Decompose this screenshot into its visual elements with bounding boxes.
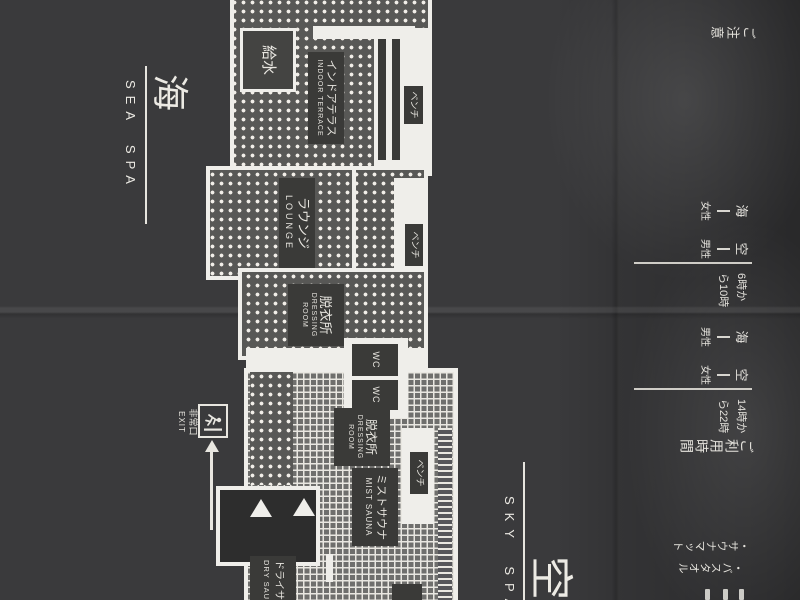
bath-assignment: 海 男性 bbox=[699, 322, 752, 352]
schedule-time: 6時か ら10時 bbox=[714, 273, 749, 307]
exit-label: 非常口 EXIT bbox=[176, 400, 198, 444]
exit-label-en: EXIT bbox=[176, 400, 186, 444]
indoor-terrace-label: インドアテラス INDOOR TERRACE bbox=[308, 52, 344, 144]
sky-spa-title: 空 SKY SPA bbox=[502, 462, 572, 600]
floor-dotted-patch bbox=[250, 372, 293, 485]
clipped-text-fragments bbox=[739, 589, 744, 600]
wall-segment bbox=[313, 26, 415, 39]
bath-assignment: 海 女性 bbox=[699, 196, 752, 226]
indoor-terrace-jp: インドアテラス bbox=[324, 60, 338, 137]
indoor-terrace-en: INDOOR TERRACE bbox=[315, 59, 324, 136]
schedule-evening: 海 男性 空 女性 14時か ら22時 bbox=[622, 322, 754, 440]
wc-box: WC bbox=[352, 344, 398, 376]
amenity-item: ・バスタオル bbox=[652, 560, 744, 575]
wc-box: WC bbox=[352, 380, 398, 410]
clipped-text-fragments bbox=[723, 589, 728, 600]
mist-sauna-label: ミストサウナ MIST SAUNA bbox=[352, 468, 398, 546]
dressing-room-upper-label: 脱衣所 DRESSING ROOM bbox=[288, 284, 344, 346]
connector-line bbox=[717, 210, 730, 212]
connector-line bbox=[717, 374, 730, 376]
dressing-room-lower-label: 脱衣所 DRESSING ROOM bbox=[334, 408, 390, 466]
bench-seat-line bbox=[378, 36, 386, 160]
spa-map-sheet: 給水 インドアテラス INDOOR TERRACE ベンチ ベンチ ベンチ ラウ… bbox=[0, 0, 800, 600]
bench-seat-line bbox=[392, 36, 400, 160]
lounge-label: ラウンジ LOUNGE bbox=[279, 178, 315, 268]
direction-triangle-icon bbox=[250, 499, 272, 517]
connector-line bbox=[717, 336, 730, 338]
clipped-text-fragments bbox=[705, 589, 710, 600]
bath-assignment: 空 男性 bbox=[699, 234, 752, 264]
schedule-time: 14時か ら22時 bbox=[714, 399, 749, 433]
running-man-icon bbox=[203, 409, 223, 433]
brochure-photo: 給水 インドアテラス INDOOR TERRACE ベンチ ベンチ ベンチ ラウ… bbox=[0, 0, 800, 600]
water-station-box: 給水 bbox=[240, 28, 296, 92]
sky-kanji: 空 bbox=[528, 556, 572, 600]
exit-arrow-head bbox=[205, 440, 219, 452]
water-station-label: 給水 bbox=[259, 45, 278, 75]
schedule-morning: 海 女性 空 男性 6時か ら10時 bbox=[622, 196, 754, 314]
notice-heading: ご注意 bbox=[692, 22, 756, 41]
amenity-item: ・サウナマット bbox=[640, 538, 750, 553]
schedule-divider bbox=[634, 388, 752, 390]
wall-tick bbox=[326, 554, 333, 582]
hatched-wall-strip bbox=[438, 428, 452, 600]
schedule-divider bbox=[634, 262, 752, 264]
sky-spa-rule bbox=[523, 462, 525, 600]
direction-triangle-icon bbox=[293, 498, 315, 516]
exit-arrow-line bbox=[210, 452, 213, 530]
corridor-dark bbox=[216, 486, 320, 566]
bench-label: ベンチ bbox=[404, 86, 423, 124]
exit-sign-box bbox=[198, 404, 228, 438]
hours-heading: ご利用時間 bbox=[670, 436, 754, 456]
sky-spa-latin: SKY SPA bbox=[502, 496, 517, 600]
bench-label: ベンチ bbox=[405, 224, 423, 266]
sea-spa-title: 海 SEA SPA bbox=[123, 66, 188, 236]
dry-sauna-label: ドライサウナ DRY SAUNA bbox=[250, 556, 296, 600]
exit-label-jp: 非常口 bbox=[186, 400, 198, 444]
sea-spa-latin: SEA SPA bbox=[123, 80, 138, 236]
bench-label: ベンチ bbox=[410, 452, 428, 494]
sea-kanji: 海 bbox=[151, 74, 188, 236]
connector-line bbox=[717, 248, 730, 250]
bath-assignment: 空 女性 bbox=[699, 360, 752, 390]
sea-spa-rule bbox=[145, 66, 147, 224]
dark-notch bbox=[392, 584, 422, 600]
